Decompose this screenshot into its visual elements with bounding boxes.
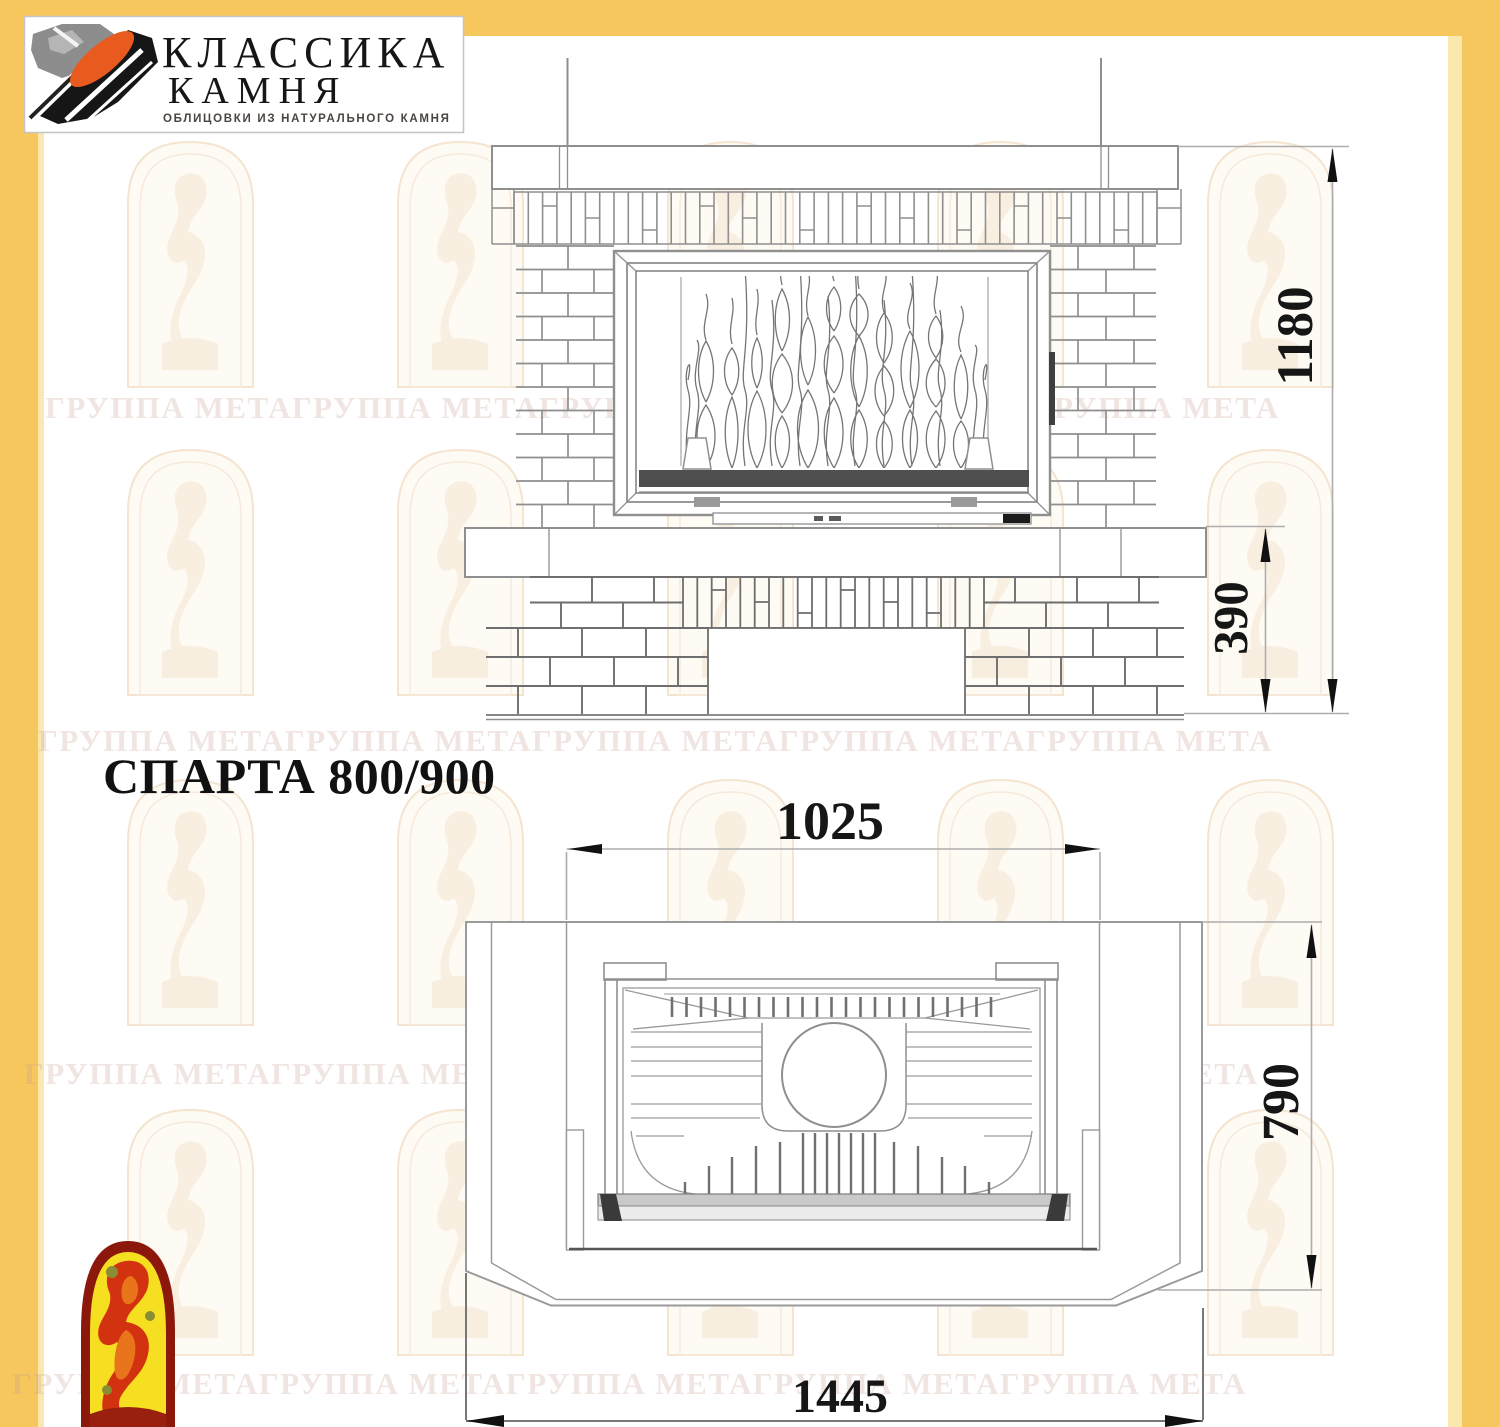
svg-text:ГРУППА МЕТАГРУППА МЕТАГРУППА М: ГРУППА МЕТАГРУППА МЕТАГРУППА МЕТАГРУППА … <box>12 1366 1247 1401</box>
svg-text:СПАРТА 800/900: СПАРТА 800/900 <box>103 748 496 804</box>
svg-text:1025: 1025 <box>776 791 884 851</box>
svg-text:1445: 1445 <box>792 1370 888 1423</box>
svg-text:790: 790 <box>1253 1063 1310 1141</box>
svg-text:1180: 1180 <box>1268 286 1324 385</box>
svg-text:ОБЛИЦОВКИ ИЗ НАТУРАЛЬНОГО КАМН: ОБЛИЦОВКИ ИЗ НАТУРАЛЬНОГО КАМНЯ <box>163 113 451 125</box>
svg-text:390: 390 <box>1203 581 1258 655</box>
svg-text:КАМНЯ: КАМНЯ <box>168 70 347 112</box>
